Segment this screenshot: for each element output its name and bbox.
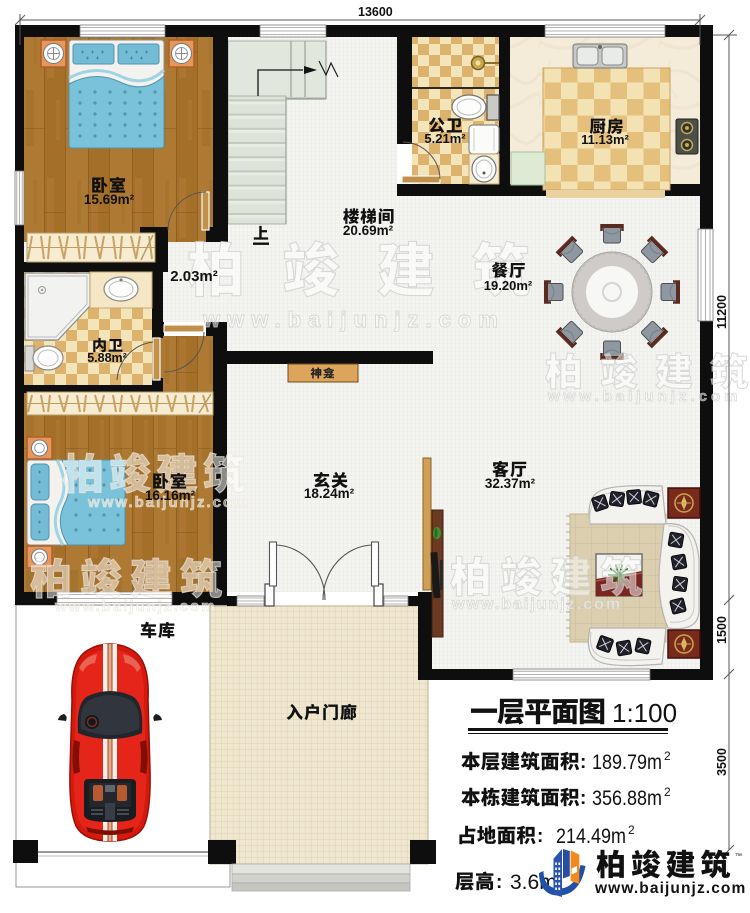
svg-text:19.20m²: 19.20m² xyxy=(484,278,533,293)
svg-text:1:100: 1:100 xyxy=(612,698,677,728)
svg-text:3500: 3500 xyxy=(715,748,729,776)
svg-text:11200: 11200 xyxy=(715,295,729,329)
svg-text:1500: 1500 xyxy=(715,616,729,644)
svg-text::: : xyxy=(496,872,502,893)
svg-text::: : xyxy=(580,752,586,773)
svg-text:214.49m: 214.49m xyxy=(556,825,626,848)
svg-text:32.37m²: 32.37m² xyxy=(485,476,536,491)
svg-text:2: 2 xyxy=(628,823,635,837)
svg-text:20.69m²: 20.69m² xyxy=(343,223,394,238)
svg-text:11.13m²: 11.13m² xyxy=(581,132,629,147)
svg-text::: : xyxy=(580,788,586,809)
svg-text:2.03m²: 2.03m² xyxy=(170,268,218,285)
svg-text:18.24m²: 18.24m² xyxy=(304,486,355,501)
svg-text:www.baijunjz.com: www.baijunjz.com xyxy=(547,388,741,405)
svg-text:www.baijunjz.com: www.baijunjz.com xyxy=(202,307,505,332)
svg-text:16.16m²: 16.16m² xyxy=(145,488,196,503)
svg-text:15.69m²: 15.69m² xyxy=(84,192,135,207)
svg-text:189.79m: 189.79m xyxy=(592,751,662,774)
svg-text:2: 2 xyxy=(664,749,671,763)
svg-text:5.88m²: 5.88m² xyxy=(87,351,127,365)
svg-text::: : xyxy=(537,826,543,847)
svg-text:5.21m²: 5.21m² xyxy=(424,131,466,146)
svg-text:356.88m: 356.88m xyxy=(592,787,662,810)
svg-text:2: 2 xyxy=(664,785,671,799)
svg-text:www.baijunjz.com: www.baijunjz.com xyxy=(594,880,746,897)
svg-text:13600: 13600 xyxy=(358,5,393,19)
svg-text:™: ™ xyxy=(735,853,742,860)
svg-text:www.baijunjz.com: www.baijunjz.com xyxy=(451,596,622,613)
svg-text:www.baijunjz.com: www.baijunjz.com xyxy=(54,598,216,615)
